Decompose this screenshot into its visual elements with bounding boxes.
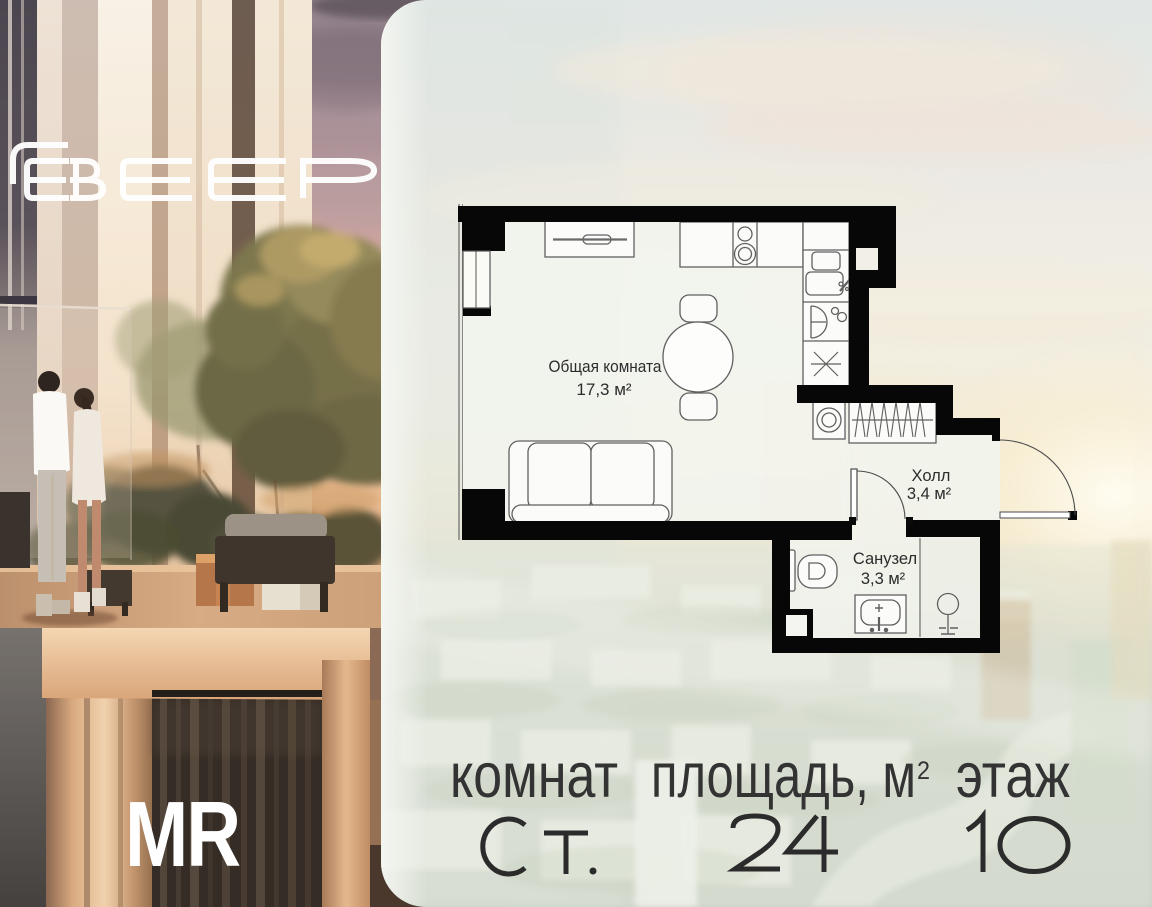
svg-text:2: 2: [917, 758, 930, 786]
svg-text:площадь, м: площадь, м: [651, 740, 916, 811]
svg-text:3,4 м²: 3,4 м²: [907, 485, 952, 503]
svg-text:17,3 м²: 17,3 м²: [576, 380, 631, 399]
svg-text:3,3 м²: 3,3 м²: [861, 570, 906, 588]
svg-text:Холл: Холл: [912, 467, 951, 485]
svg-text:этаж: этаж: [956, 740, 1070, 811]
svg-text:Общая комната: Общая комната: [549, 357, 662, 376]
svg-text:комнат: комнат: [450, 740, 618, 811]
svg-text:Санузел: Санузел: [853, 550, 917, 568]
